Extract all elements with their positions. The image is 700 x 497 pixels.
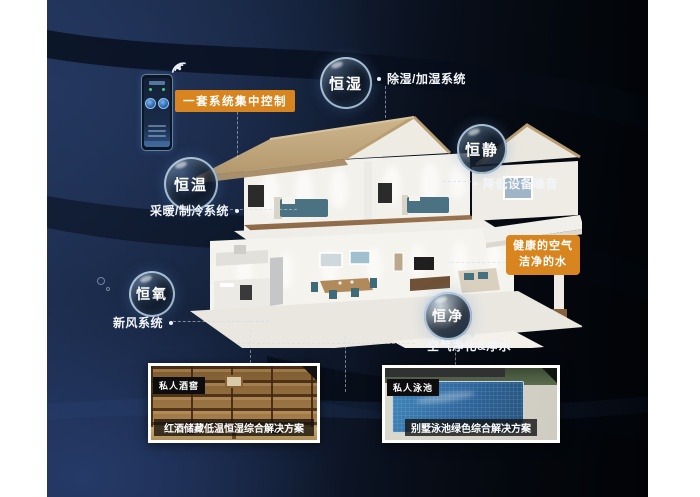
note-purify: 空气净化&净水 bbox=[417, 337, 511, 354]
dial-knob-icon bbox=[158, 98, 169, 109]
connector-hengshi-to-roof bbox=[385, 86, 386, 118]
bubble-hengwen-label: 恒温 bbox=[174, 174, 208, 195]
note-dehumidify-text: 除湿/加湿系统 bbox=[387, 70, 466, 87]
photo-corner-ribbon bbox=[542, 368, 557, 383]
bullet-dot bbox=[235, 209, 239, 213]
benefit-line2: 洁净的水 bbox=[513, 255, 573, 271]
note-noise-text: 降低设备噪音 bbox=[483, 175, 558, 192]
bubble-hengyang: 恒氧 bbox=[129, 271, 175, 317]
bullet-dot bbox=[169, 321, 173, 325]
connector-wine-photo bbox=[250, 330, 251, 363]
connector-benefit bbox=[451, 262, 506, 263]
bubble-hengjingjing-label: 恒净 bbox=[432, 306, 464, 326]
bubble-hengjing-label: 恒静 bbox=[465, 139, 499, 160]
bullet-dot bbox=[417, 344, 421, 348]
benefit-callout-box: 健康的空气 洁净的水 bbox=[506, 235, 580, 275]
house-illustration bbox=[182, 113, 582, 348]
connector-hengyang bbox=[173, 321, 269, 322]
infographic-canvas: 一套系统集中控制 健康的空气 洁净的水 恒湿 恒静 恒温 恒氧 恒净 除湿/加湿… bbox=[47, 0, 648, 497]
bubble-hengyang-label: 恒氧 bbox=[136, 284, 168, 304]
note-freshair-text: 新风系统 bbox=[113, 314, 163, 331]
decor-bubble bbox=[106, 287, 110, 291]
connector-mid-photo bbox=[345, 336, 346, 392]
bullet-dot bbox=[473, 182, 477, 186]
note-purify-text: 空气净化&净水 bbox=[427, 337, 511, 354]
pool-photo-caption: 别墅泳池绿色综合解决方案 bbox=[405, 419, 537, 436]
wine-photo-tag: 私人酒窖 bbox=[153, 377, 205, 394]
connector-hengjing bbox=[443, 181, 471, 182]
note-dehumidify: 除湿/加湿系统 bbox=[377, 70, 466, 87]
note-freshair: 新风系统 bbox=[113, 314, 173, 331]
dial-knob-icon bbox=[145, 98, 156, 109]
wine-cellar-photo: 私人酒窖 红酒储藏低温恒湿综合解决方案 bbox=[148, 363, 320, 443]
connector-control-to-house bbox=[237, 107, 238, 158]
bubble-hengshi: 恒湿 bbox=[320, 57, 372, 109]
bubble-hengjingjing: 恒净 bbox=[424, 292, 472, 340]
note-heating-text: 采暖/制冷系统 bbox=[150, 202, 229, 219]
bubble-hengjing: 恒静 bbox=[457, 124, 507, 174]
control-callout-box: 一套系统集中控制 bbox=[175, 90, 295, 112]
smart-control-panel bbox=[141, 74, 173, 151]
benefit-line1: 健康的空气 bbox=[513, 239, 573, 255]
bubble-hengshi-label: 恒湿 bbox=[329, 73, 363, 94]
phone-screen bbox=[144, 78, 170, 147]
pool-photo: 私人泳池 别墅泳池绿色综合解决方案 bbox=[382, 365, 560, 443]
phone-header-bar bbox=[149, 81, 165, 85]
photo-corner-ribbon bbox=[302, 366, 317, 381]
connector-benefit-dot bbox=[447, 260, 451, 264]
infographic-page: 一套系统集中控制 健康的空气 洁净的水 恒湿 恒静 恒温 恒氧 恒净 除湿/加湿… bbox=[0, 0, 700, 497]
wine-photo-caption: 红酒储藏低温恒湿综合解决方案 bbox=[154, 419, 314, 436]
status-led bbox=[162, 88, 165, 91]
note-noise: 降低设备噪音 bbox=[473, 175, 558, 192]
bullet-dot bbox=[377, 77, 381, 81]
status-led bbox=[149, 88, 152, 91]
decor-bubble bbox=[97, 277, 105, 285]
connector-hengjingj bbox=[237, 343, 415, 344]
control-callout-label: 一套系统集中控制 bbox=[183, 96, 287, 108]
note-heating: 采暖/制冷系统 bbox=[150, 202, 239, 219]
wine-wall-art bbox=[225, 375, 243, 388]
pool-photo-tag: 私人泳池 bbox=[387, 379, 439, 396]
phone-footer-band bbox=[144, 141, 170, 147]
